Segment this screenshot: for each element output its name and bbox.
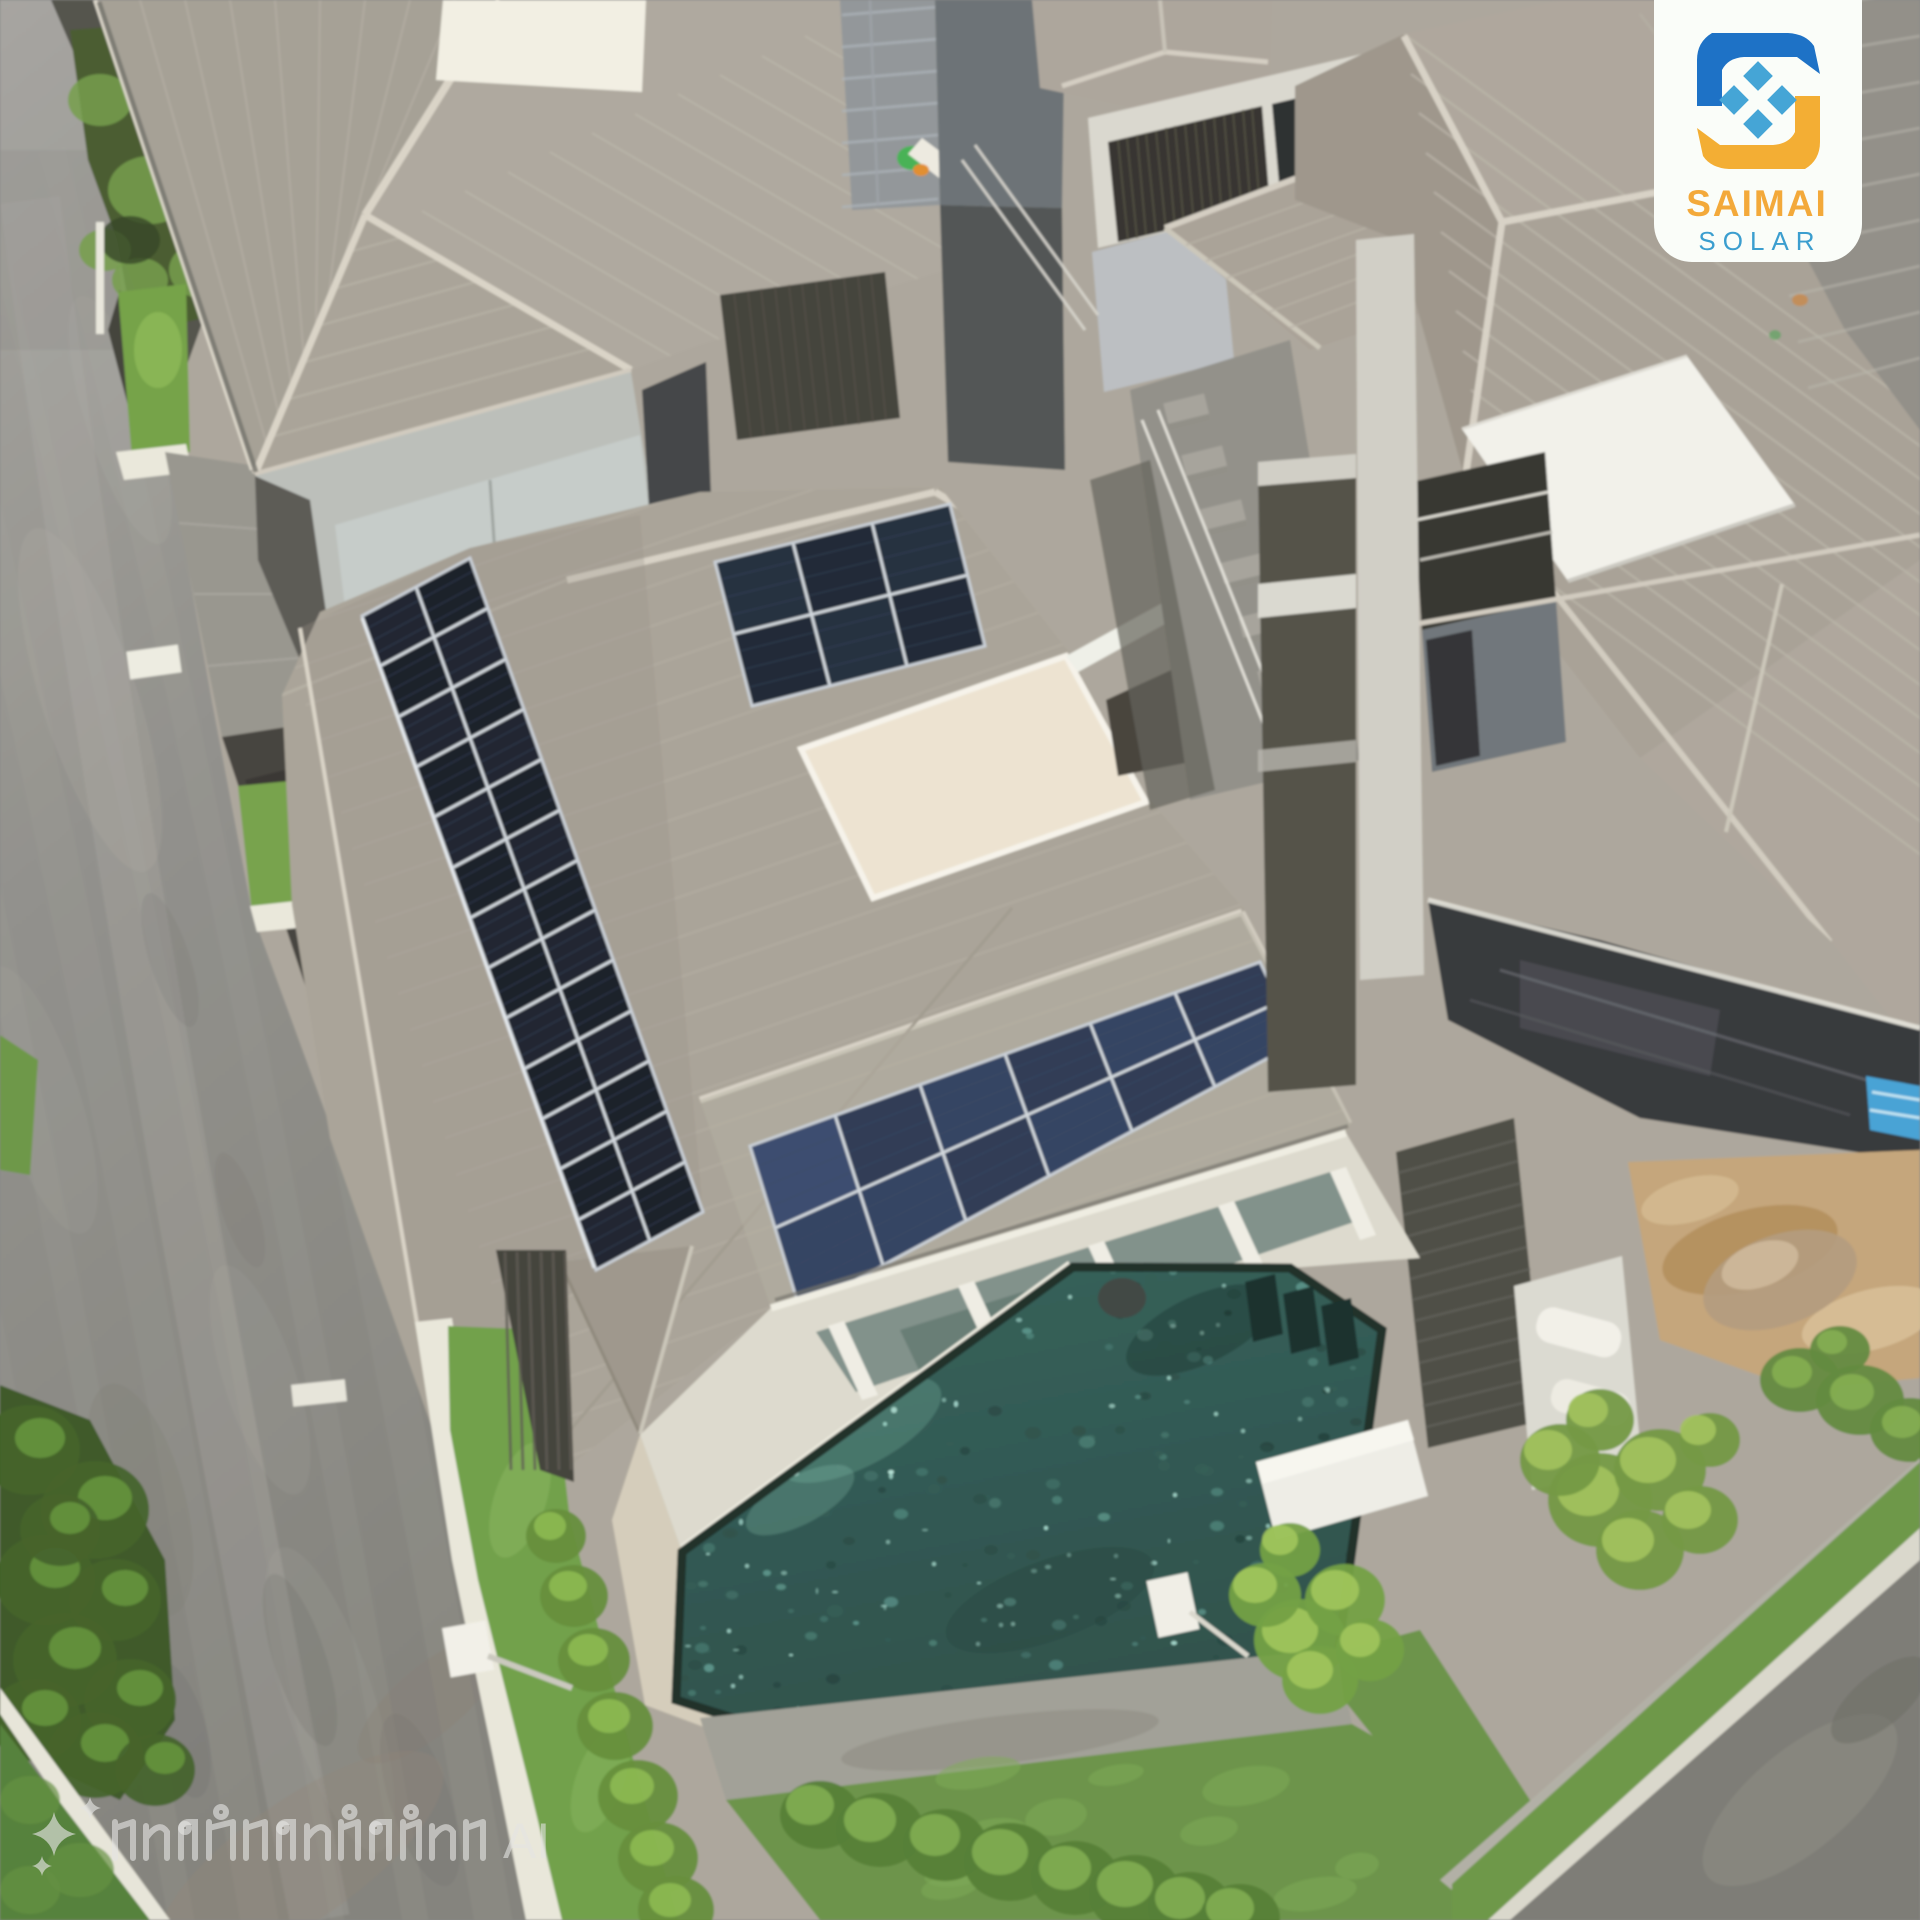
svg-text:SAIMAI: SAIMAI — [1686, 183, 1828, 224]
svg-text:SOLAR: SOLAR — [1698, 226, 1821, 256]
svg-text:AI: AI — [503, 1813, 550, 1869]
